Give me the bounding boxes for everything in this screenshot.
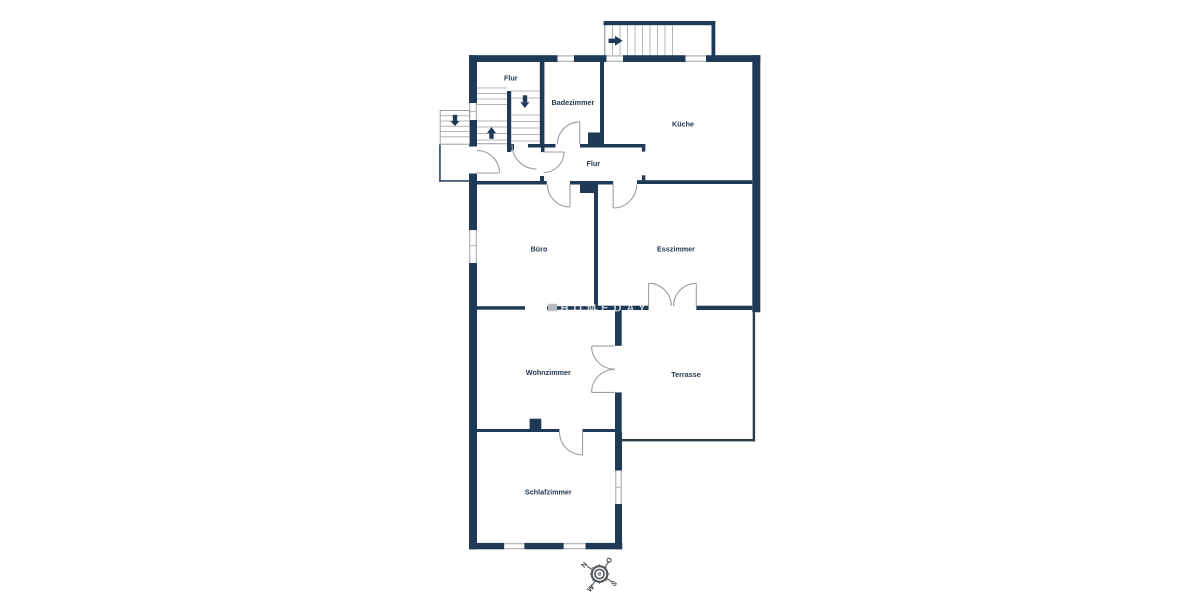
svg-text:Esszimmer: Esszimmer bbox=[657, 245, 695, 254]
svg-text:HOMEDAY: HOMEDAY bbox=[561, 302, 651, 314]
svg-text:Badezimmer: Badezimmer bbox=[552, 98, 595, 107]
svg-text:Küche: Küche bbox=[672, 120, 694, 129]
svg-text:Terrasse: Terrasse bbox=[671, 370, 700, 379]
svg-text:Flur: Flur bbox=[504, 73, 518, 82]
svg-text:Flur: Flur bbox=[587, 159, 601, 168]
svg-text:Büro: Büro bbox=[531, 245, 548, 254]
svg-text:Schlafzimmer: Schlafzimmer bbox=[525, 487, 572, 496]
svg-text:Wohnzimmer: Wohnzimmer bbox=[526, 368, 571, 377]
